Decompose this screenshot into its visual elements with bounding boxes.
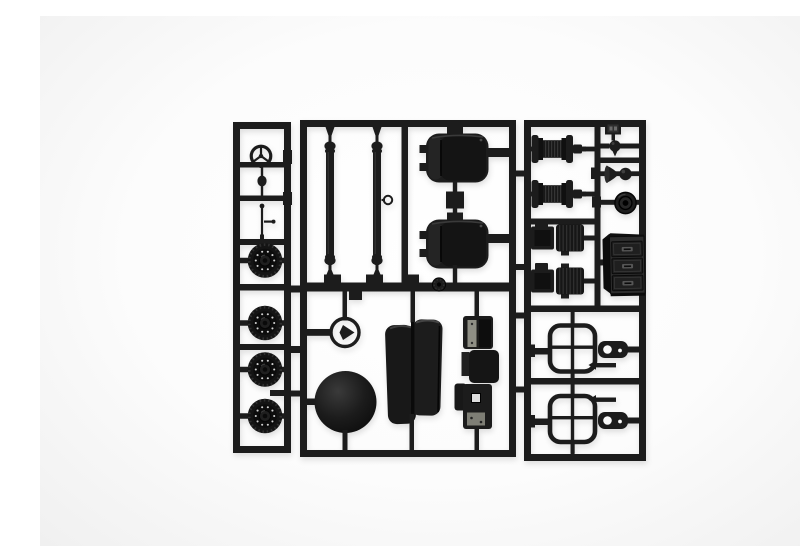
mounting-plate-part-2 xyxy=(598,412,646,429)
sprue-number-tag xyxy=(605,123,621,141)
seat-cushion-part-2 xyxy=(420,213,510,269)
steering-wheel-part xyxy=(251,146,271,168)
road-wheel-part-3 xyxy=(239,352,291,387)
road-wheel-part-4 xyxy=(239,399,291,434)
road-wheel-part-2 xyxy=(239,306,291,341)
cable-spool-part-1 xyxy=(526,135,595,163)
seat-cushion-part-1 xyxy=(420,127,510,183)
sprue-runner-right xyxy=(524,120,646,458)
model-kit-sprue-photo xyxy=(40,16,800,546)
mounting-plate-part-1 xyxy=(598,341,646,358)
winch-part-1 xyxy=(528,220,595,256)
winch-part-2 xyxy=(528,263,595,299)
cabinet-drawers xyxy=(612,241,644,291)
small-pulley-part xyxy=(432,278,445,291)
shifter-knob-part xyxy=(257,167,266,196)
drawer-cabinet-part xyxy=(596,233,645,297)
spare-tire-part xyxy=(303,371,377,455)
drive-shaft-part-1 xyxy=(324,127,335,277)
cable-spool-part-2 xyxy=(526,180,595,208)
sprue-tree xyxy=(236,120,646,458)
window-frame-part-2 xyxy=(524,381,597,453)
window-frame-part-1 xyxy=(524,311,597,383)
drive-shaft-part-2 xyxy=(371,127,382,277)
sprue-runner-middle xyxy=(300,120,516,457)
tarpaulin-part xyxy=(385,292,443,456)
engine-block-part xyxy=(455,292,500,458)
sprue-illustration xyxy=(40,16,800,546)
seat-parts xyxy=(420,127,510,285)
sprue-runner-left xyxy=(236,126,292,450)
road-wheel-part-1 xyxy=(239,243,291,278)
control-lever-part xyxy=(260,204,276,240)
tow-ring-part xyxy=(382,196,393,204)
